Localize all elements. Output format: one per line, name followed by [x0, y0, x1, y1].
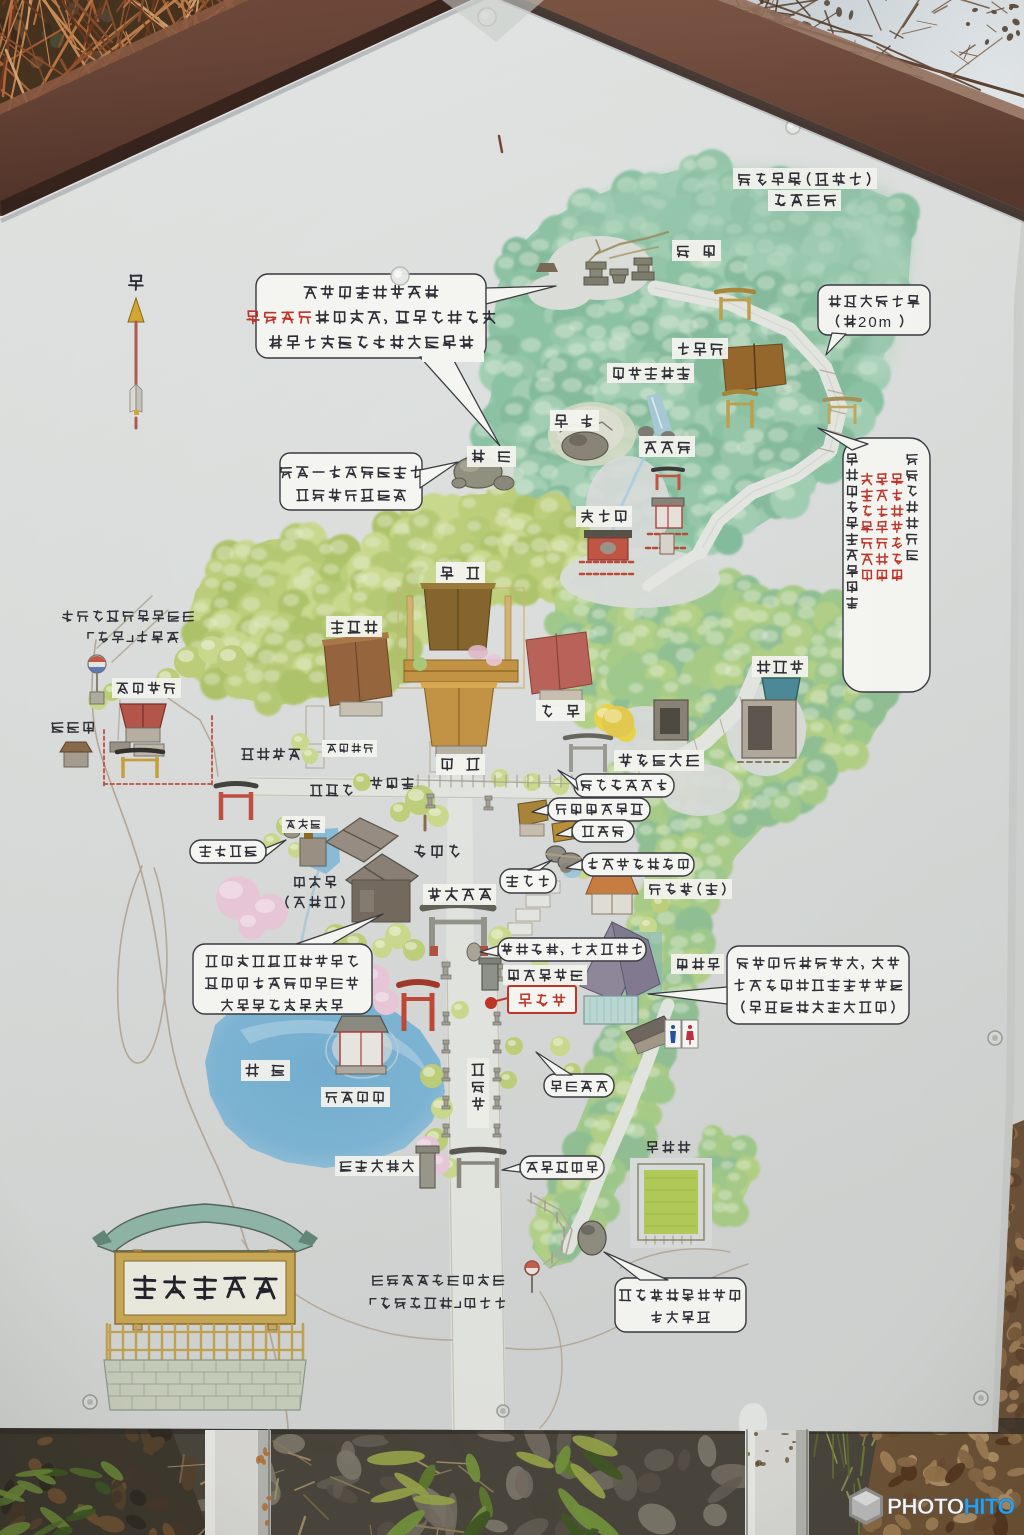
svg-text:PHOTOHITO: PHOTOHITO [887, 1494, 1015, 1519]
